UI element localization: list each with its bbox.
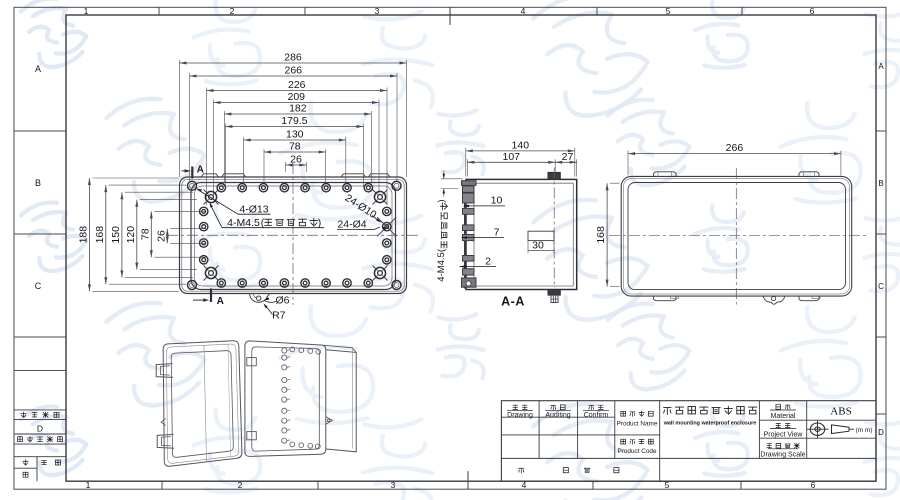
svg-text:120: 120 xyxy=(125,226,137,244)
svg-text:168: 168 xyxy=(94,226,106,244)
svg-text:2: 2 xyxy=(238,480,243,490)
svg-text:4-Ø13: 4-Ø13 xyxy=(239,204,268,216)
svg-text:A: A xyxy=(197,164,204,175)
svg-text:A: A xyxy=(878,62,884,71)
svg-text:ABS: ABS xyxy=(830,406,851,418)
svg-text:B: B xyxy=(35,178,41,188)
svg-text:10: 10 xyxy=(491,195,503,207)
svg-text:Product Code: Product Code xyxy=(617,448,657,455)
svg-text:(: ( xyxy=(261,217,265,229)
svg-text:7: 7 xyxy=(494,226,500,238)
svg-text:Auditing: Auditing xyxy=(545,412,570,419)
svg-text:D: D xyxy=(878,428,884,437)
svg-text:4-M4.5: 4-M4.5 xyxy=(227,217,260,229)
svg-text:130: 130 xyxy=(286,129,304,141)
svg-text:182: 182 xyxy=(289,103,307,115)
svg-text:C: C xyxy=(35,281,42,291)
svg-text:188: 188 xyxy=(77,226,89,244)
svg-text:A: A xyxy=(35,64,41,74)
svg-text:26: 26 xyxy=(290,154,302,166)
svg-text:2: 2 xyxy=(485,255,491,267)
svg-text:Drawing Scale: Drawing Scale xyxy=(760,452,805,459)
svg-text:A-A: A-A xyxy=(501,295,525,309)
svg-text:A: A xyxy=(217,296,224,307)
svg-text:): ) xyxy=(436,199,447,202)
svg-text:B: B xyxy=(878,179,883,188)
svg-text:3: 3 xyxy=(391,480,396,490)
svg-text:C: C xyxy=(878,282,884,291)
svg-text:78: 78 xyxy=(139,228,151,240)
svg-text:): ) xyxy=(318,217,322,229)
svg-text:Confirm: Confirm xyxy=(584,412,609,419)
svg-text:30: 30 xyxy=(532,240,544,252)
svg-text:D: D xyxy=(37,423,43,433)
svg-text:Material: Material xyxy=(771,413,796,420)
svg-text:4: 4 xyxy=(521,6,526,16)
svg-text:1: 1 xyxy=(84,6,89,16)
svg-text:140: 140 xyxy=(512,139,530,151)
svg-text:78: 78 xyxy=(289,141,301,153)
svg-text:6: 6 xyxy=(810,6,815,16)
svg-text:R7: R7 xyxy=(272,310,286,322)
svg-text:179.5: 179.5 xyxy=(281,115,307,127)
svg-text:27: 27 xyxy=(562,151,574,163)
svg-text:Drawing: Drawing xyxy=(507,412,533,419)
svg-text:107: 107 xyxy=(502,151,520,163)
svg-text:5: 5 xyxy=(666,6,671,16)
svg-text:Project View: Project View xyxy=(764,431,804,438)
svg-text:2: 2 xyxy=(230,6,235,16)
svg-text:1: 1 xyxy=(86,480,91,490)
svg-text:wall mounting waterproof enclo: wall mounting waterproof enclosure xyxy=(663,421,757,427)
svg-text:150: 150 xyxy=(110,226,122,244)
svg-text:Ø6: Ø6 xyxy=(275,295,289,307)
svg-text:26: 26 xyxy=(155,230,167,242)
svg-text:266: 266 xyxy=(284,65,302,77)
svg-text:3: 3 xyxy=(375,6,380,16)
svg-text:266: 266 xyxy=(726,142,744,154)
svg-text:209: 209 xyxy=(287,91,305,103)
svg-text:168: 168 xyxy=(595,226,607,244)
svg-text:(m m): (m m) xyxy=(856,427,873,434)
svg-text:286: 286 xyxy=(284,52,302,64)
svg-text:4-M4.5(: 4-M4.5( xyxy=(436,248,447,282)
svg-text:Product Name: Product Name xyxy=(617,420,658,427)
svg-text:24-Ø4: 24-Ø4 xyxy=(337,219,366,231)
svg-text:226: 226 xyxy=(288,79,306,91)
